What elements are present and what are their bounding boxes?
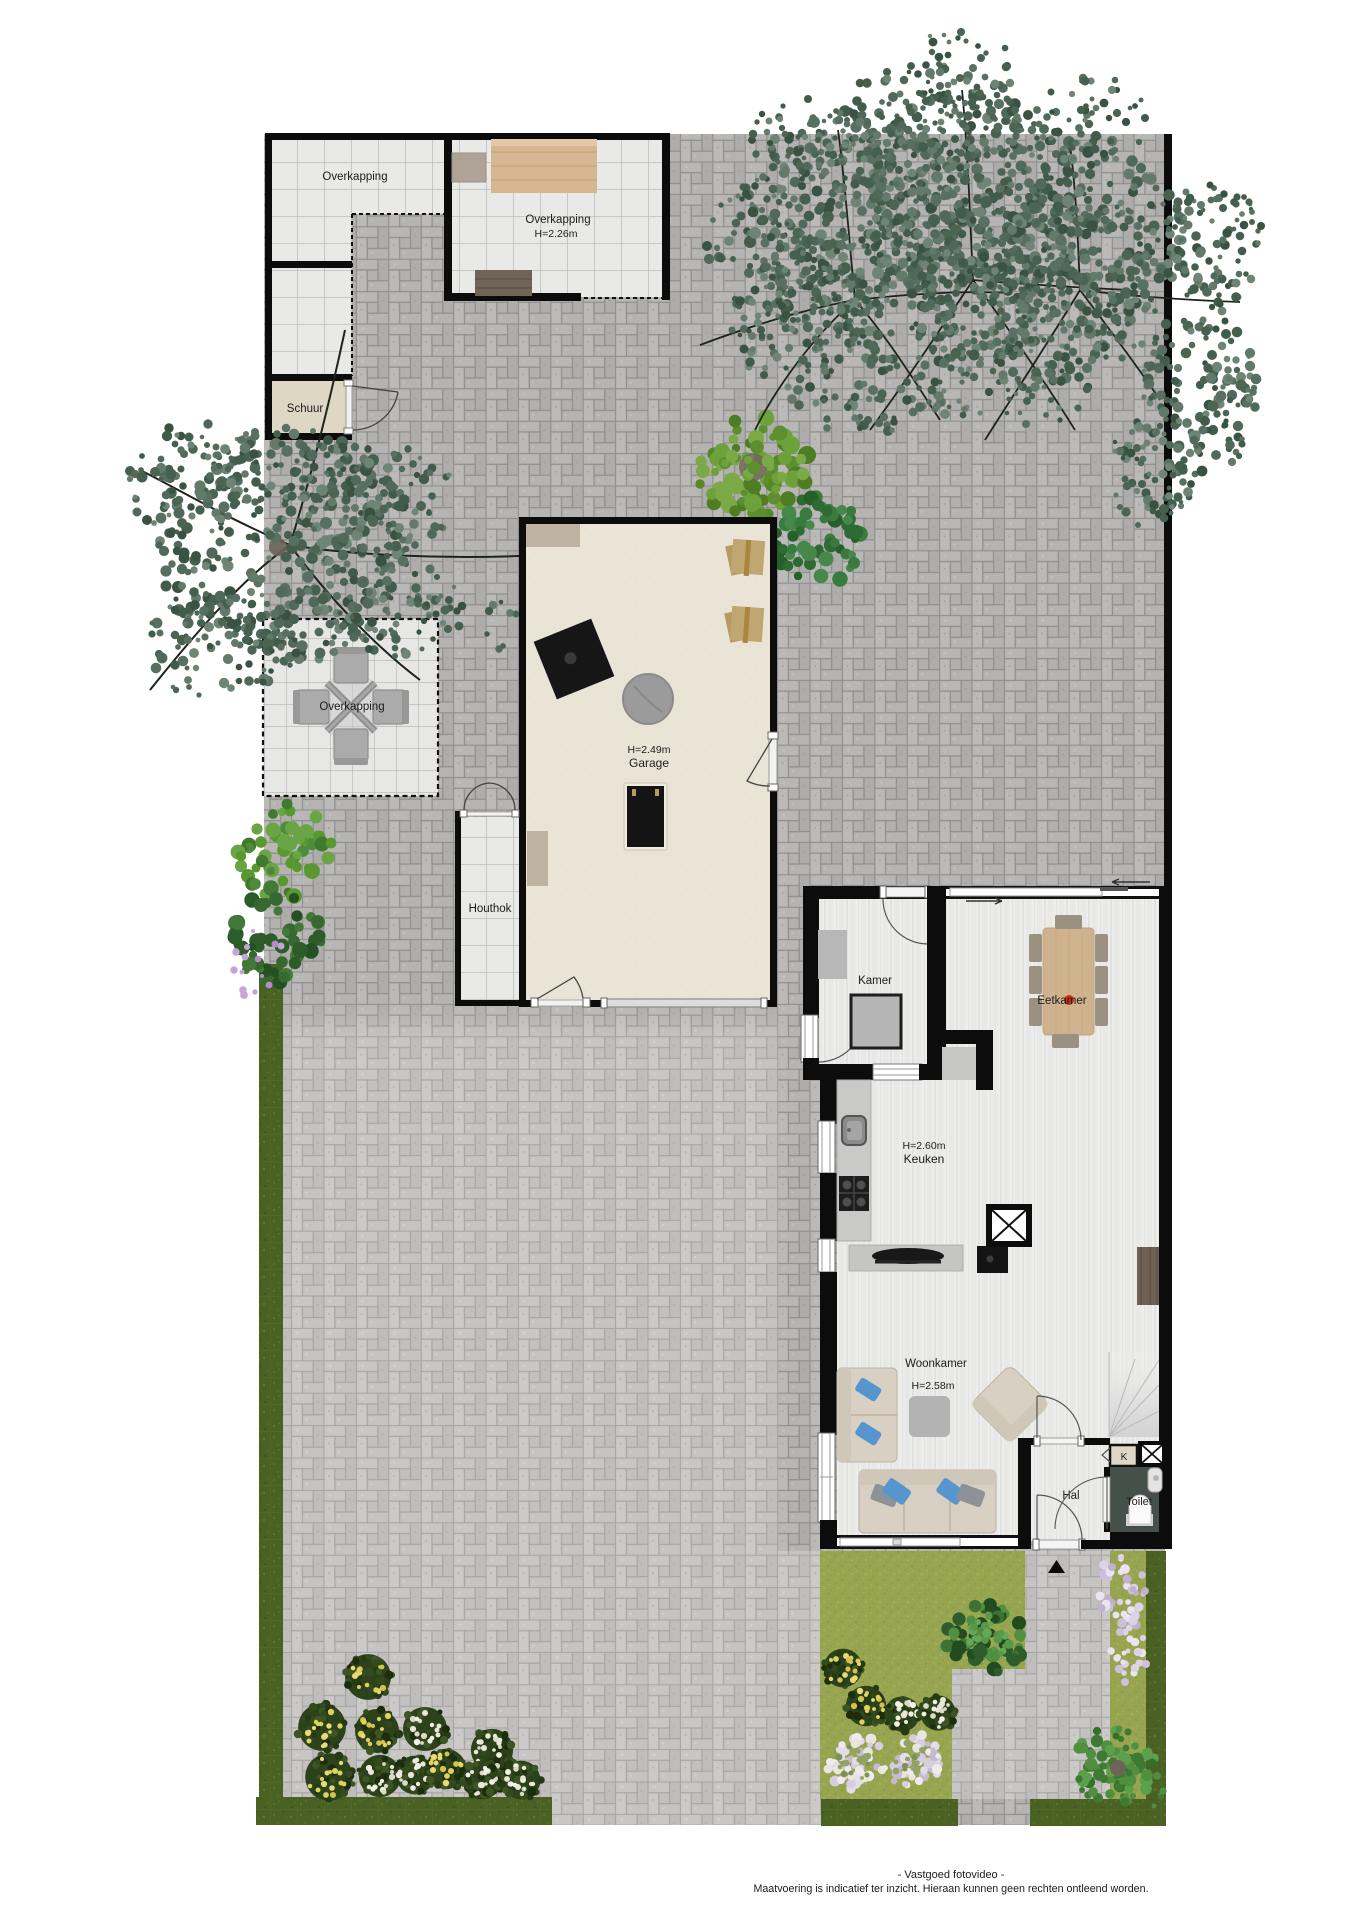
svg-text:Woonkamer: Woonkamer [905, 1358, 967, 1370]
svg-text:K: K [1121, 1452, 1128, 1463]
svg-text:H=2.60m: H=2.60m [903, 1140, 946, 1152]
svg-text:Keuken: Keuken [904, 1152, 945, 1166]
svg-text:Overkapping: Overkapping [322, 171, 387, 183]
svg-text:Schuur: Schuur [287, 403, 324, 415]
svg-text:Maatvoering is indicatief ter: Maatvoering is indicatief ter inzicht. H… [753, 1883, 1148, 1895]
svg-text:Overkapping: Overkapping [319, 701, 384, 713]
svg-text:Overkapping: Overkapping [525, 214, 590, 226]
svg-text:Garage: Garage [629, 756, 669, 770]
svg-text:Eetkamer: Eetkamer [1037, 995, 1086, 1007]
svg-text:Toilet: Toilet [1126, 1496, 1152, 1508]
svg-text:- Vastgoed fotovideo -: - Vastgoed fotovideo - [898, 1869, 1005, 1881]
svg-text:H=2.26m: H=2.26m [535, 228, 578, 240]
svg-text:Houthok: Houthok [469, 903, 512, 915]
svg-text:Kamer: Kamer [858, 975, 892, 987]
svg-text:H=2.58m: H=2.58m [912, 1380, 955, 1392]
svg-text:H=2.49m: H=2.49m [628, 744, 671, 756]
